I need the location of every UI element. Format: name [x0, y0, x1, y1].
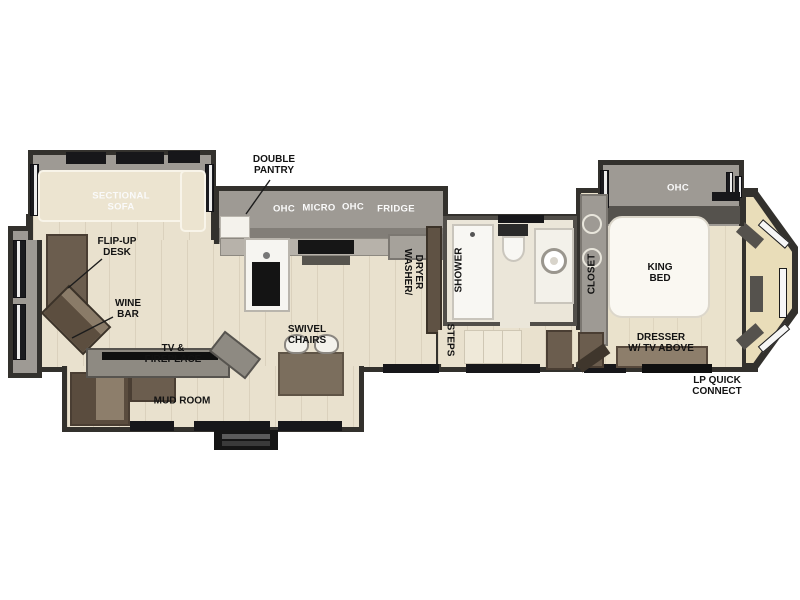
island-faucet	[263, 252, 270, 259]
bedroom-front-window	[712, 192, 740, 201]
sectional-slide-skylight-1	[66, 152, 106, 164]
swivel-chair-table	[278, 352, 344, 396]
label-sectional-sofa: SECTIONAL SOFA	[92, 191, 150, 212]
label-washer-dryer: WASHER/ DRYER	[402, 249, 424, 296]
label-lp-quick-connect: LP QUICK CONNECT	[692, 375, 741, 397]
oven-front	[302, 256, 350, 265]
label-steps: STEPS	[444, 324, 455, 357]
label-closet: CLOSET	[586, 254, 597, 295]
label-king-bed: KING BED	[648, 262, 673, 284]
label-shower: SHOWER	[453, 248, 464, 293]
label-ohc-left: OHC	[273, 205, 295, 216]
island-sink	[252, 262, 280, 306]
label-dresser: DRESSER W/ TV ABOVE	[628, 332, 694, 354]
entry-steps	[214, 430, 278, 450]
living-bottom-window	[383, 364, 439, 373]
washer-dryer-cabinet	[426, 226, 442, 334]
toilet-bowl	[502, 236, 525, 262]
label-bedroom-ohc: OHC	[667, 184, 689, 195]
bath-door-gap	[500, 320, 530, 328]
label-tv-fireplace: TV & FIREPLACE	[145, 343, 202, 365]
shower-head	[470, 232, 475, 237]
mud-room-window-2	[278, 421, 342, 431]
sectional-slide-window-right	[205, 164, 214, 212]
label-flip-up-desk: FLIP-UP DESK	[98, 236, 137, 258]
corridor-bench	[546, 330, 574, 370]
label-micro: MICRO	[302, 204, 335, 215]
label-ohc-right: OHC	[342, 203, 364, 214]
cooktop	[298, 240, 354, 254]
sectional-slide-skylight-2	[116, 152, 164, 164]
rv-floorplan: SECTIONAL SOFA DOUBLE PANTRY OHC MICRO O…	[0, 0, 800, 600]
mud-room-cabinet-door	[96, 378, 124, 420]
label-wine-bar: WINE BAR	[115, 298, 141, 320]
entry-step-tread-2	[222, 441, 270, 446]
rear-bay-window-lower	[13, 304, 26, 360]
label-fridge: FRIDGE	[377, 205, 415, 216]
corridor-bottom-window	[466, 364, 540, 373]
front-cap-window-mid	[779, 268, 787, 318]
label-mud-room: MUD ROOM	[154, 395, 211, 406]
pantry-counter	[220, 216, 250, 238]
sectional-sofa-chaise	[180, 170, 206, 232]
closet-door-arc-1	[582, 214, 602, 234]
rear-bay-window-upper	[13, 240, 26, 298]
steps-area	[464, 330, 522, 364]
front-cap-cushion-mid	[750, 276, 763, 312]
bath-top-window	[498, 215, 544, 223]
sectional-slide-skylight-3	[168, 151, 200, 163]
lp-quick-connect-port	[642, 364, 712, 373]
label-double-pantry: DOUBLE PANTRY	[253, 154, 295, 176]
mud-room-window-1	[130, 421, 174, 431]
vanity-sink-drain	[550, 257, 558, 265]
toilet-tank	[498, 224, 528, 236]
entry-step-tread-1	[222, 434, 270, 439]
label-swivel-chairs: SWIVEL CHAIRS	[288, 324, 326, 346]
